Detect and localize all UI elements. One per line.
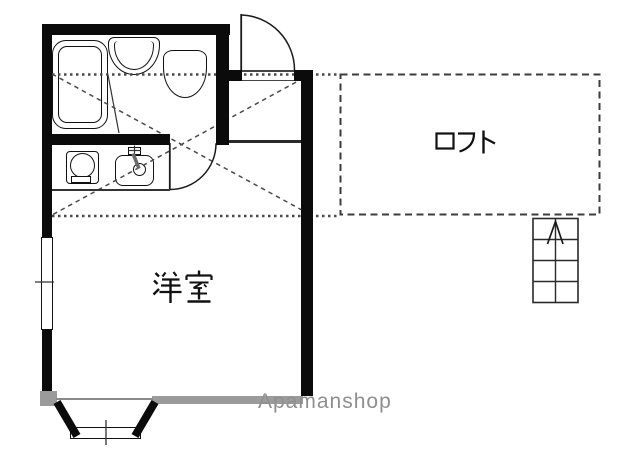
wall-right [301,70,313,396]
bathtub-inner-rim [58,46,102,123]
western-room-label-text: 洋室 [152,270,214,304]
wall-bathroom-bottom [42,134,170,145]
bay-window-inner-edge [56,398,153,400]
floorplan-canvas: 洋室 ロフト [0,0,640,452]
stairs-up-arrow-icon [548,222,564,245]
wall-corner-bottom-left [40,391,57,406]
sink-drain [133,163,146,176]
western-room-label: 洋室 [152,270,214,304]
wall-entry-left [216,70,242,81]
faucet-icon [128,147,141,155]
loft-label: ロフト [434,129,500,155]
bathroom-door-swing [170,143,216,189]
wall-left [42,24,52,391]
washing-machine-tray [71,176,91,183]
left-window [41,237,53,330]
entry-step-line [229,140,301,143]
bay-window-sill [70,427,141,439]
washing-machine-drum [70,153,95,178]
toilet [163,50,207,98]
entrance-threshold-top [242,70,294,72]
apamanshop-watermark: Apamanshop [258,390,392,414]
bathroom-partition-line [108,75,119,133]
loft-stairs [533,219,578,303]
wall-bathroom-right [216,24,229,145]
loft-label-text: ロフト [434,129,500,155]
kitchen-counter-edge [52,189,170,191]
entrance-door-swing [241,15,294,70]
wall-bathroom-top [42,24,230,35]
entrance-threshold-bottom [242,80,294,82]
